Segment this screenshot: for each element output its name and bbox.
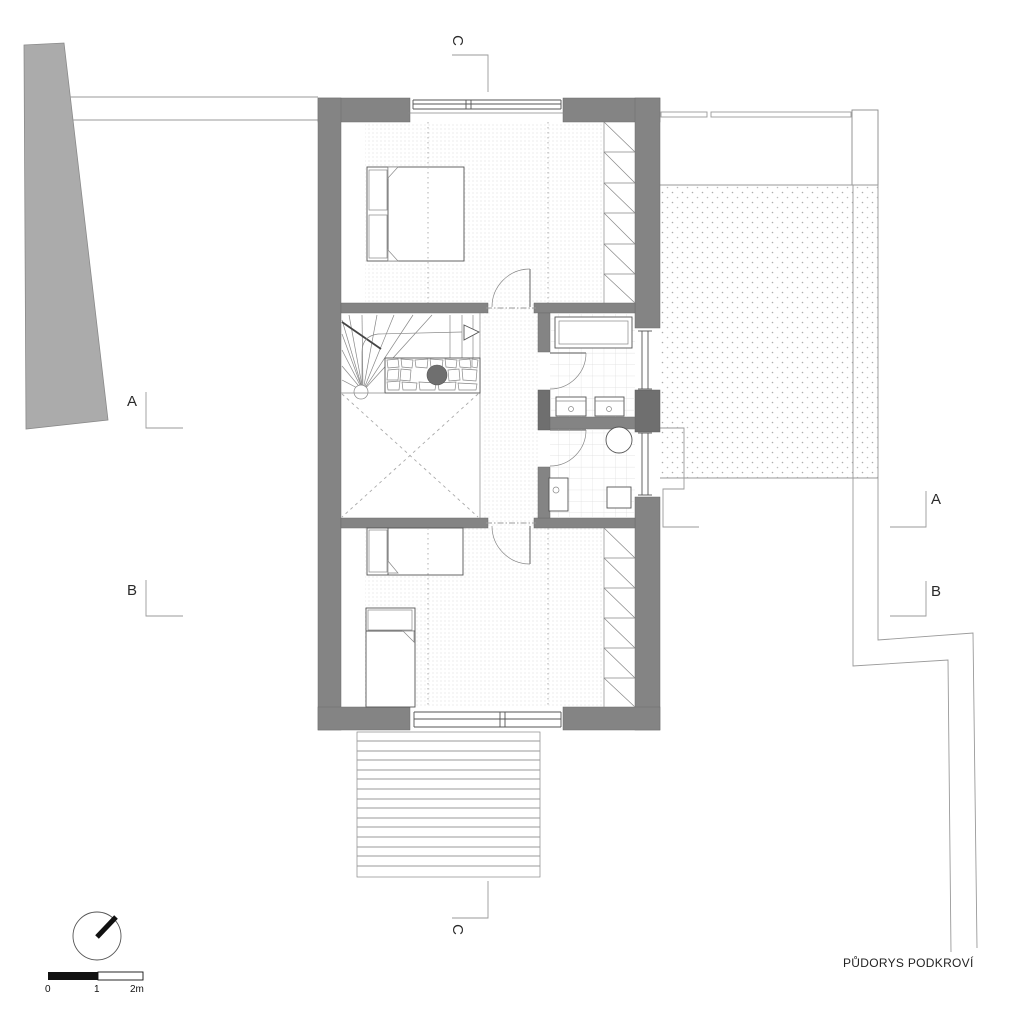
attic-floor-plan-sheet: A B A B C C PŮDORYS PODKROVÍ 0 1 2m bbox=[0, 0, 1024, 1024]
bathtub bbox=[555, 317, 632, 348]
void-over-stair bbox=[341, 393, 478, 517]
pillow bbox=[369, 215, 387, 258]
bath-wall-seg-2 bbox=[538, 467, 550, 518]
terrace-pillar bbox=[852, 110, 878, 185]
scale-bar bbox=[48, 972, 143, 980]
washbasin bbox=[556, 397, 586, 416]
corridor-floor-top bbox=[488, 303, 534, 313]
newel-post bbox=[354, 385, 368, 399]
section-marker-b-left: B bbox=[127, 583, 137, 598]
chimney-flue bbox=[427, 365, 447, 385]
pillow bbox=[368, 610, 412, 630]
chimney-masonry bbox=[385, 358, 480, 393]
partition-lower-right bbox=[534, 518, 635, 528]
window-bath-top bbox=[638, 331, 652, 389]
section-marker-b-right: B bbox=[931, 584, 941, 599]
deck bbox=[357, 732, 540, 877]
section-a-right-leader bbox=[890, 491, 926, 527]
section-c-bottom-leader bbox=[452, 881, 488, 918]
floor-plan-drawing bbox=[0, 0, 1024, 1024]
upper-terrace-paving bbox=[660, 185, 878, 478]
wardrobe-top bbox=[604, 122, 635, 303]
partition-upper-left bbox=[341, 303, 488, 313]
pillow bbox=[369, 170, 387, 210]
section-marker-a-right: A bbox=[931, 492, 941, 507]
single-bed-horizontal bbox=[367, 528, 463, 575]
bath-wall-seg-1 bbox=[538, 313, 550, 352]
scale-label-1: 1 bbox=[94, 984, 100, 995]
section-marker-a-left: A bbox=[127, 394, 137, 409]
wardrobe-bottom bbox=[604, 528, 635, 707]
toilet bbox=[549, 478, 568, 511]
terrace-railing-segment-1 bbox=[661, 112, 707, 117]
wall-right-lower bbox=[635, 497, 660, 730]
window-bottom-facade bbox=[414, 712, 561, 727]
window-bath-bottom bbox=[638, 433, 652, 495]
bathroom-cabinet bbox=[607, 487, 631, 508]
wall-bottom-right bbox=[563, 707, 660, 730]
bath-wall-pier bbox=[538, 390, 550, 430]
site-boundary-outer bbox=[878, 185, 977, 948]
stair-direction-arrow bbox=[464, 325, 479, 340]
wall-left bbox=[318, 98, 341, 730]
wall-right-window-pier bbox=[635, 390, 660, 432]
bedroom-top bbox=[365, 122, 635, 308]
section-c-top-leader bbox=[452, 55, 488, 92]
section-marker-c-bottom: C bbox=[450, 924, 465, 935]
neighbor-building-footprint bbox=[24, 43, 108, 429]
section-a-left-leader bbox=[146, 392, 183, 428]
partition-lower-left bbox=[341, 518, 488, 528]
wall-right-upper bbox=[635, 98, 660, 328]
bedroom-bottom bbox=[365, 526, 635, 707]
corridor-floor bbox=[482, 313, 538, 518]
terrace-railing-segment-2 bbox=[711, 112, 851, 117]
double-bed bbox=[367, 167, 464, 261]
pillow bbox=[369, 530, 387, 572]
single-bed-vertical bbox=[366, 608, 415, 707]
scale-label-2m: 2m bbox=[130, 984, 144, 995]
section-b-left-leader bbox=[146, 580, 183, 616]
washbasin bbox=[595, 397, 624, 416]
north-arrow-icon bbox=[73, 912, 121, 960]
drawing-title: PŮDORYS PODKROVÍ bbox=[843, 956, 974, 970]
window-top-facade bbox=[408, 100, 565, 113]
wall-bottom-left bbox=[318, 707, 410, 730]
scale-label-0: 0 bbox=[45, 984, 51, 995]
partition-upper-right bbox=[534, 303, 635, 313]
section-marker-c-top: C bbox=[450, 35, 465, 46]
section-b-right-leader bbox=[890, 581, 926, 616]
stair-hall bbox=[341, 303, 538, 528]
shower-basin bbox=[606, 427, 632, 453]
